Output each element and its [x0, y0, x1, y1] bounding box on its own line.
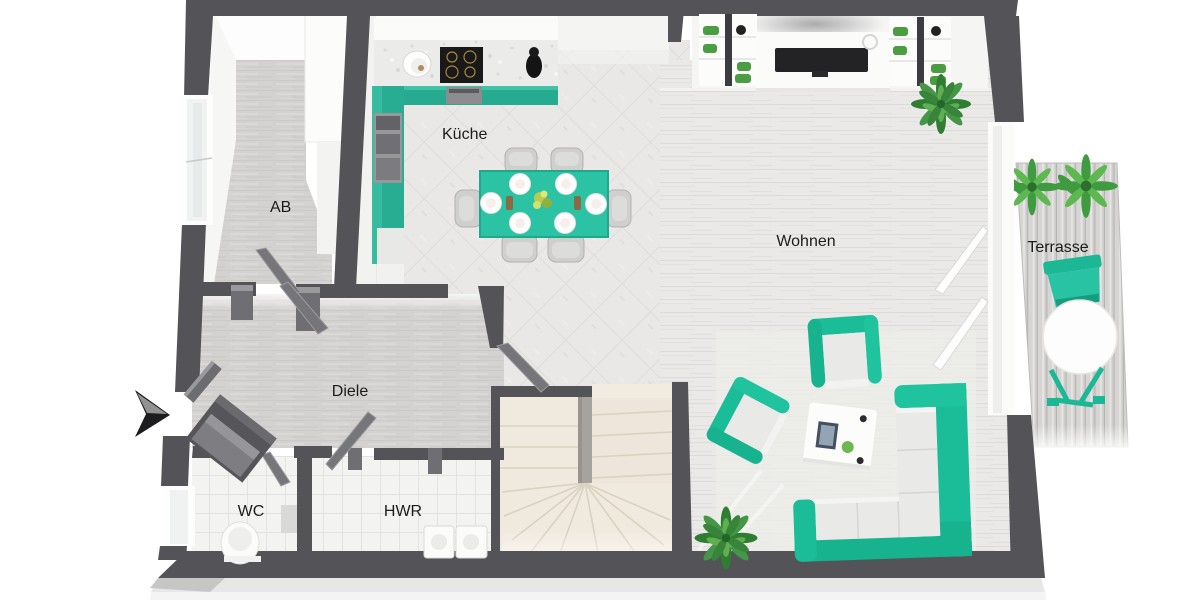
svg-text:HWR: HWR — [384, 503, 422, 520]
svg-text:Wohnen: Wohnen — [776, 233, 835, 250]
svg-text:WC: WC — [238, 503, 265, 520]
svg-text:Terrasse: Terrasse — [1027, 239, 1088, 256]
svg-text:Küche: Küche — [442, 126, 487, 143]
svg-text:Diele: Diele — [332, 383, 369, 400]
svg-text:AB: AB — [270, 199, 291, 216]
